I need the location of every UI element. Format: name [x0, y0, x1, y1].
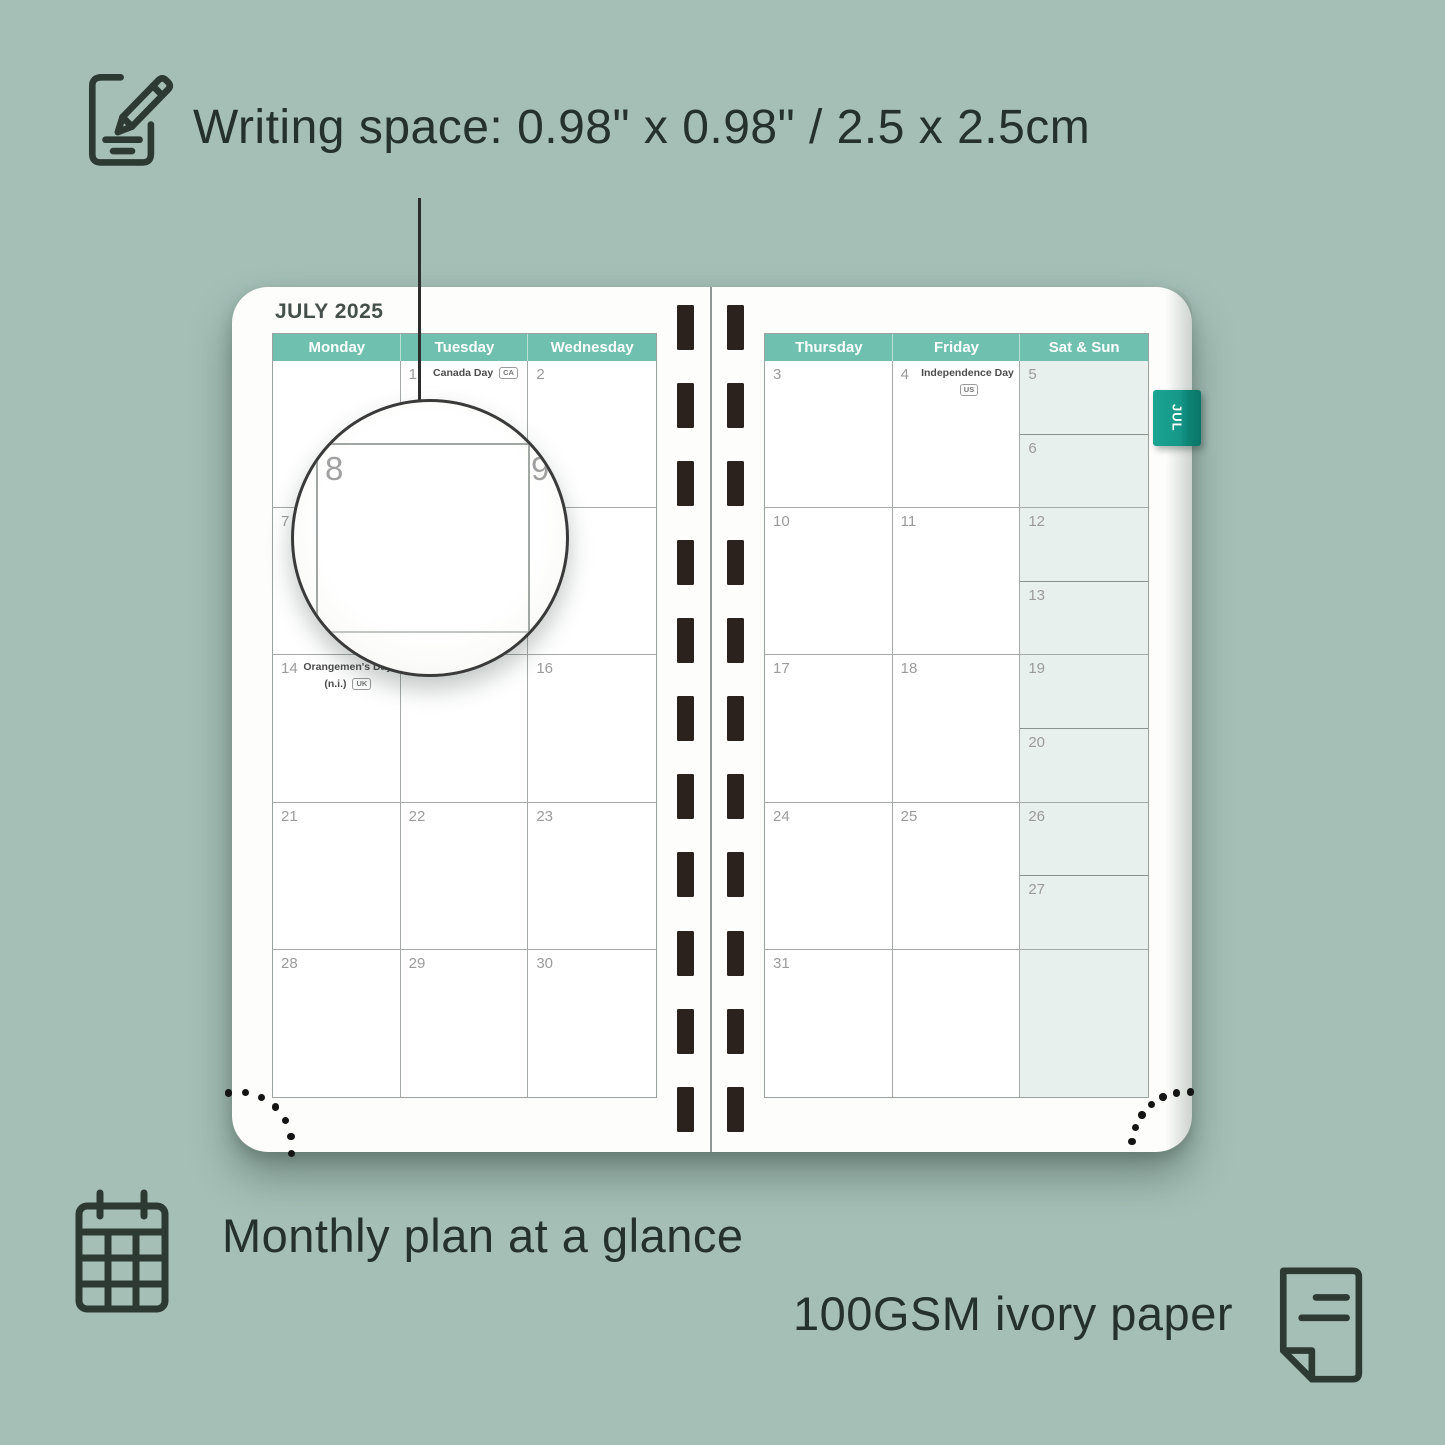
binding-hole: [677, 696, 694, 741]
monthly-plan-label: Monthly plan at a glance: [222, 1208, 744, 1263]
binding-hole: [727, 305, 744, 350]
date-number: 17: [773, 660, 790, 677]
writing-pad-icon: [84, 66, 180, 175]
stitch-dot: [272, 1103, 280, 1111]
calendar-cell: 3: [765, 361, 893, 508]
page-gutter-line: [710, 287, 712, 1152]
calendar-icon: [74, 1186, 170, 1321]
date-number: 3: [773, 366, 781, 383]
binding-hole: [677, 1009, 694, 1054]
date-number: 27: [1028, 881, 1045, 898]
calendar-cell: [401, 655, 529, 802]
date-number: 7: [281, 513, 289, 530]
magnified-grid-line: [316, 443, 318, 633]
weekend-half-cell: 13: [1020, 582, 1148, 656]
calendar-cell: 21: [273, 803, 401, 950]
weekend-half-cell: 5: [1020, 361, 1148, 435]
holiday-label: Independence Day US: [893, 365, 1021, 399]
date-number: 23: [536, 808, 553, 825]
calendar-cell: 4Independence Day US: [893, 361, 1021, 508]
day-header: Monday: [273, 334, 401, 361]
binding-hole: [677, 461, 694, 506]
date-number: 12: [1028, 513, 1045, 530]
binding-hole: [677, 774, 694, 819]
binding-hole: [727, 696, 744, 741]
binding-hole: [727, 774, 744, 819]
product-banner: Writing space: 0.98" x 0.98" / 2.5 x 2.5…: [0, 0, 1445, 1445]
weekend-half-cell: 27: [1020, 876, 1148, 950]
magnified-grid-line: [316, 631, 530, 633]
calendar-cell: 14Orangemen's Day(n.i.) UK: [273, 655, 401, 802]
date-number: 19: [1028, 660, 1045, 677]
binding-hole: [727, 540, 744, 585]
weekend-cell: 1920: [1020, 655, 1148, 802]
date-number: 16: [536, 660, 553, 677]
stitch-dot: [1173, 1089, 1181, 1097]
magnified-grid-line: [294, 443, 566, 445]
magnifier-circle: 8 9: [291, 399, 569, 677]
binding-hole: [677, 305, 694, 350]
magnified-date-number: 9: [531, 450, 549, 488]
date-number: 28: [281, 955, 298, 972]
calendar-cell: 18: [893, 655, 1021, 802]
binding-hole: [727, 852, 744, 897]
date-number: 30: [536, 955, 553, 972]
date-number: 22: [409, 808, 426, 825]
date-number: 31: [773, 955, 790, 972]
day-header: Friday: [893, 334, 1021, 361]
calendar-cell: 30: [528, 950, 656, 1097]
stitch-dot: [1159, 1093, 1167, 1101]
calendar-cell: 24: [765, 803, 893, 950]
weekend-cell: [1020, 950, 1148, 1097]
date-number: 26: [1028, 808, 1045, 825]
country-badge: US: [960, 384, 978, 396]
binding-hole: [727, 1087, 744, 1132]
date-number: 5: [1028, 366, 1036, 383]
date-number: 11: [901, 513, 917, 530]
calendar-cell: 29: [401, 950, 529, 1097]
binding-hole: [727, 383, 744, 428]
date-number: 25: [901, 808, 918, 825]
weekend-half-cell: 26: [1020, 803, 1148, 877]
date-number: 6: [1028, 440, 1036, 457]
date-number: 21: [281, 808, 298, 825]
calendar-cell: 28: [273, 950, 401, 1097]
date-number: 18: [901, 660, 918, 677]
calendar-cell: 16: [528, 655, 656, 802]
date-number: 2: [536, 366, 544, 383]
weekend-half-cell: 19: [1020, 655, 1148, 729]
binding-hole: [677, 1087, 694, 1132]
calendar-right-page: ThursdayFridaySat & Sun34Independence Da…: [764, 333, 1149, 1098]
calendar-cell: 25: [893, 803, 1021, 950]
calendar-cell: 22: [401, 803, 529, 950]
calendar-cell: [893, 950, 1021, 1097]
weekend-cell: 1213: [1020, 508, 1148, 655]
stitch-dot: [225, 1089, 233, 1097]
date-number: 20: [1028, 734, 1045, 751]
date-number: 29: [409, 955, 426, 972]
weekend-half-cell: 20: [1020, 729, 1148, 803]
binding-hole: [727, 618, 744, 663]
calendar-cell: 11: [893, 508, 1021, 655]
stitch-dot: [1128, 1138, 1136, 1146]
stitch-dot: [1138, 1111, 1146, 1119]
binding-hole: [677, 852, 694, 897]
stitch-dot: [288, 1150, 296, 1158]
paper-icon: [1271, 1264, 1365, 1391]
binding-hole: [727, 931, 744, 976]
weekend-half-cell: 12: [1020, 508, 1148, 582]
day-header: Sat & Sun: [1020, 334, 1148, 361]
day-header: Wednesday: [528, 334, 656, 361]
writing-space-label: Writing space: 0.98" x 0.98" / 2.5 x 2.5…: [193, 100, 1090, 155]
magnified-grid-line: [528, 443, 530, 657]
weekend-cell: 56: [1020, 361, 1148, 508]
binding-hole: [727, 1009, 744, 1054]
stitch-dot: [1187, 1088, 1195, 1096]
pointer-line: [418, 198, 421, 406]
calendar-cell: 17: [765, 655, 893, 802]
weekend-half-cell: 6: [1020, 435, 1148, 509]
binding-hole: [677, 931, 694, 976]
month-title: JULY 2025: [275, 300, 383, 324]
country-badge: CA: [499, 367, 518, 379]
calendar-cell: 31: [765, 950, 893, 1097]
binding-hole: [677, 618, 694, 663]
calendar-cell: 10: [765, 508, 893, 655]
weekend-cell: 2627: [1020, 803, 1148, 950]
date-number: 10: [773, 513, 790, 530]
month-tab: JUL: [1153, 390, 1201, 446]
day-header: Thursday: [765, 334, 893, 361]
binding-hole: [727, 461, 744, 506]
country-badge: UK: [352, 678, 371, 690]
calendar-cell: 23: [528, 803, 656, 950]
paper-label: 100GSM ivory paper: [793, 1286, 1233, 1341]
date-number: 24: [773, 808, 790, 825]
date-number: 13: [1028, 587, 1045, 604]
binding-hole: [677, 383, 694, 428]
magnified-date-number: 8: [325, 450, 343, 488]
binding-hole: [677, 540, 694, 585]
